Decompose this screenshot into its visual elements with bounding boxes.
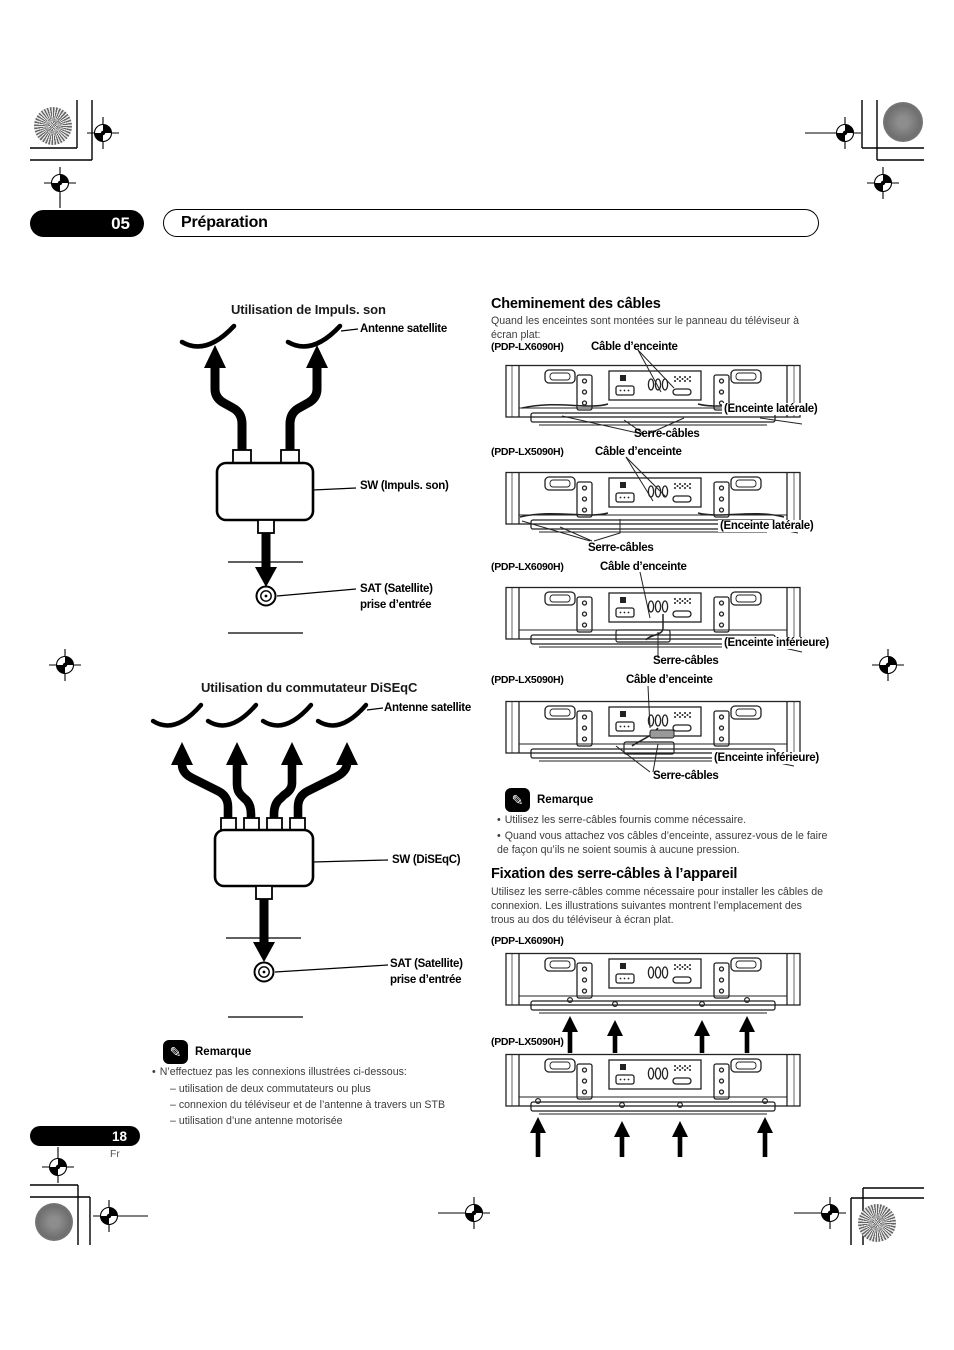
fig6-model: (PDP-LX5090H) [491, 1036, 564, 1048]
page-number-badge: 18 [30, 1126, 140, 1146]
halftone-dot-topleft [34, 107, 72, 145]
fig1-speaker-label: (Enceinte latérale) [722, 403, 819, 415]
diagram2-antenna-label: Antenne satellite [384, 702, 471, 714]
fig2-tv-rear-diagram [498, 455, 808, 547]
fig1-tv-rear-diagram [498, 348, 808, 440]
page-number: 18 [112, 1129, 127, 1144]
pencil-icon: ✎ [505, 788, 530, 812]
diagram2-sat-label-line1: SAT (Satellite) [390, 958, 463, 970]
diagram1-sat-label-line2: prise d’entrée [360, 599, 431, 611]
page-language: Fr [110, 1148, 120, 1160]
fig1-clamp-label: Serre-câbles [634, 428, 699, 440]
chapter-number: 05 [111, 214, 130, 234]
manual-page: 05 Préparation Utilisation de Impuls. so… [0, 0, 954, 1350]
diagram1-title: Utilisation de Impuls. son [231, 302, 386, 317]
cheminement-heading: Cheminement des câbles [491, 296, 661, 312]
fig4-speaker-label: (Enceinte inférieure) [712, 752, 821, 764]
diagram1-impuls-son [150, 318, 380, 648]
diagram2-title: Utilisation du commutateur DiSEqC [201, 680, 417, 695]
chapter-number-badge: 05 [30, 210, 144, 237]
left-remarque-header: ✎ Remarque [163, 1040, 251, 1064]
left-remarque-item-3: – utilisation d’une antenne motorisée [170, 1115, 490, 1129]
registration-marks [0, 0, 954, 1350]
right-remarque-bullet-1: •Utilisez les serre-câbles fournis comme… [497, 814, 832, 828]
fig6-tv-rear-diagram [498, 1049, 808, 1161]
right-remarque-header: ✎ Remarque [505, 788, 593, 812]
cheminement-intro: Quand les enceintes sont montées sur le … [491, 315, 821, 343]
fig4-clamp-label: Serre-câbles [653, 770, 718, 782]
left-remarque-item-2: – connexion du téléviseur et de l’antenn… [170, 1099, 490, 1113]
halftone-dot-bottomleft [35, 1203, 73, 1241]
chapter-title: Préparation [181, 214, 268, 232]
fixation-heading: Fixation des serre-câbles à l’appareil [491, 866, 737, 882]
diagram1-sw-label: SW (Impuls. son) [360, 480, 448, 492]
fig2-speaker-label: (Enceinte latérale) [718, 520, 815, 532]
diagram2-sat-label-line2: prise d’entrée [390, 974, 461, 986]
fig3-clamp-label: Serre-câbles [653, 655, 718, 667]
right-remarque-title: Remarque [537, 794, 593, 806]
halftone-dot-topright [883, 102, 923, 142]
chapter-title-bar: Préparation [163, 209, 819, 237]
fig2-clamp-label: Serre-câbles [588, 542, 653, 554]
halftone-dot-bottomright [858, 1204, 896, 1242]
diagram2-diseqc [145, 695, 390, 1025]
fig3-speaker-label: (Enceinte inférieure) [722, 637, 831, 649]
right-remarque-bullet-2: •Quand vous attachez vos câbles d’encein… [497, 830, 832, 858]
left-remarque-title: Remarque [195, 1046, 251, 1058]
fixation-intro: Utilisez les serre-câbles comme nécessai… [491, 886, 826, 927]
diagram2-sw-label: SW (DiSEqC) [392, 854, 460, 866]
fig5-model: (PDP-LX6090H) [491, 935, 564, 947]
diagram1-antenna-label: Antenne satellite [360, 323, 447, 335]
left-remarque-item-1: – utilisation de deux commutateurs ou pl… [170, 1083, 490, 1097]
pencil-icon: ✎ [163, 1040, 188, 1064]
left-remarque-bullet: •N’effectuez pas les connexions illustré… [152, 1066, 482, 1080]
diagram1-sat-label-line1: SAT (Satellite) [360, 583, 433, 595]
